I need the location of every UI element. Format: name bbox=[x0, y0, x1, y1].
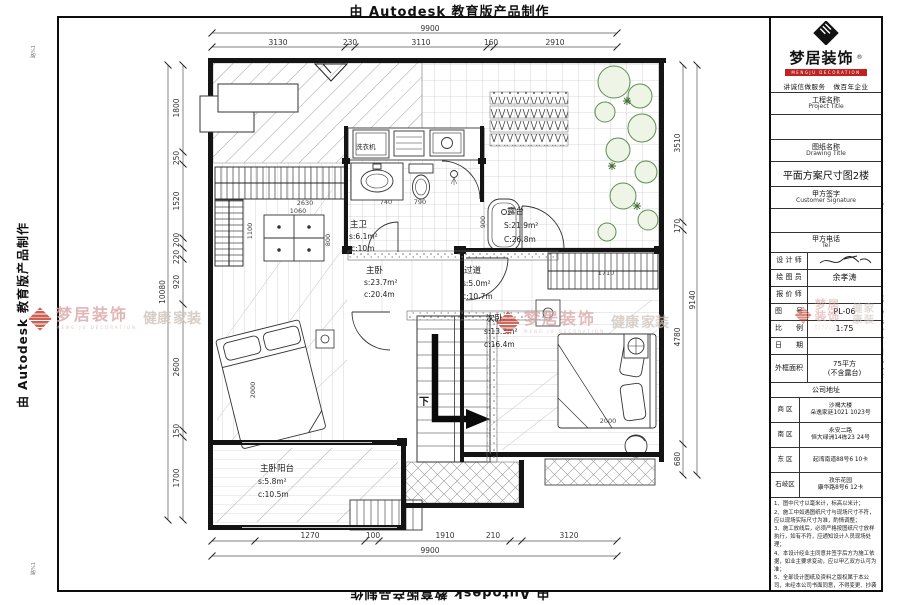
dim-label: 2910 bbox=[545, 38, 564, 47]
baywindow-seat-crosshatch bbox=[545, 459, 655, 485]
quoter-row: 报 价 师 bbox=[771, 287, 881, 304]
brand-subtitle: MENGJU DECORATION bbox=[785, 69, 866, 76]
draftsman-row: 绘 图 员 余孝涛 bbox=[771, 270, 881, 287]
area-row: 外框面积 75平方 (不含露台) bbox=[771, 355, 881, 383]
project-title-value bbox=[771, 115, 881, 140]
note-line: 5、全部设计图纸及资料之版权属于本公司，未经本公司书面同意，不得变更、抄袭及复制… bbox=[774, 575, 878, 590]
address-row: 石岐区 孜乐花园 康华路8号6 12卡 bbox=[771, 473, 881, 498]
room-perimeter: c:10.5m bbox=[258, 490, 289, 499]
room-perimeter: C:26.8m bbox=[504, 235, 536, 244]
dim-label: 2000 bbox=[600, 417, 617, 425]
dim-label: 1270 bbox=[300, 531, 319, 540]
dim-total-right: 9140 bbox=[688, 290, 697, 309]
dim-label: 740 bbox=[380, 198, 392, 206]
grate-icon bbox=[394, 131, 424, 156]
registered-mark: ® bbox=[857, 54, 863, 61]
project-title-header: 工程名称 Project Title bbox=[771, 93, 881, 115]
dim-label: 170 bbox=[673, 219, 682, 234]
dim-total-bottom: 9900 bbox=[420, 546, 439, 555]
dim-label: 1700 bbox=[172, 468, 181, 487]
room-perimeter: c:16.4m bbox=[484, 340, 515, 349]
slogan-left: 讲诚信做服务 bbox=[784, 81, 826, 91]
floor-plan-canvas: 9900 3130 230 3110 160 2910 1270 100 191… bbox=[59, 18, 771, 589]
dim-label: 160 bbox=[484, 38, 499, 47]
room-area: s:5.0m² bbox=[462, 279, 491, 288]
toilet-icon bbox=[409, 164, 433, 173]
room-name-balcony: 主卧阳台 bbox=[260, 463, 294, 474]
dim-label: 220 bbox=[172, 250, 181, 265]
room-area: s:13.3m² bbox=[484, 327, 517, 336]
room-area: S:21.9m² bbox=[504, 221, 538, 230]
dim-label: 790 bbox=[414, 198, 426, 206]
washer-label: 洗衣机 bbox=[356, 142, 376, 151]
dim-total-left: 10080 bbox=[158, 280, 167, 304]
room-perimeter: c:20.4m bbox=[364, 290, 395, 299]
staircase bbox=[417, 316, 490, 462]
general-notes: 1、图中尺寸以毫米计，标高以米计； 2、施工中如遇图纸尺寸与现场尺寸不符，应以现… bbox=[771, 498, 881, 590]
customer-signature-value bbox=[771, 209, 881, 233]
company-address-header: 公司地址 bbox=[771, 383, 881, 398]
dim-label: 920 bbox=[172, 275, 181, 290]
drawing-title-value: 平面方案尺寸图2楼 bbox=[771, 162, 881, 187]
dim-label: 200 bbox=[172, 233, 181, 248]
dim-label: 1710 bbox=[598, 269, 615, 277]
drawing-title-header: 图纸名称 Drawing Title bbox=[771, 140, 881, 162]
dim-label: 800 bbox=[324, 234, 332, 246]
dim-label: 3130 bbox=[268, 38, 287, 47]
room-area: s:5.8m² bbox=[258, 477, 287, 486]
dim-label: 250 bbox=[172, 151, 181, 166]
company-logo-icon bbox=[811, 21, 841, 45]
dim-label: 150 bbox=[172, 424, 181, 439]
dim-label: 4780 bbox=[673, 327, 682, 346]
counter-sink-icon bbox=[430, 130, 464, 156]
dim-label: 1910 bbox=[435, 531, 454, 540]
drawing-number-row: 图 号 PL-06 bbox=[771, 304, 881, 321]
note-line: 1、图中尺寸以毫米计，标高以米计； bbox=[774, 501, 878, 509]
stair-down-label: 下 bbox=[419, 396, 429, 408]
slogan-right: 做百年企业 bbox=[834, 81, 869, 91]
tel-header: 甲方电话 Tel bbox=[771, 233, 881, 253]
dim-label: 900 bbox=[479, 216, 487, 228]
room-area: s:6.1m² bbox=[349, 232, 378, 241]
address-row: 东 区 起湾南道88号6 10卡 bbox=[771, 448, 881, 473]
title-block: 梦居装饰 ® MENGJU DECORATION 讲诚信做服务 做百年企业 工程… bbox=[769, 18, 881, 590]
dim-label: 3110 bbox=[411, 38, 430, 47]
watermark-diamond-icon bbox=[28, 307, 51, 330]
room-name-second: 次卧 bbox=[486, 313, 504, 324]
room-perimeter: c:10m bbox=[351, 244, 375, 253]
plot-corner-mark-bottom: 路%1 bbox=[30, 562, 37, 575]
plot-corner-mark-top: 路%1 bbox=[30, 45, 37, 58]
dim-label: 100 bbox=[366, 531, 381, 540]
room-name-bath: 主卫 bbox=[350, 219, 368, 230]
company-logo-block: 梦居装饰 ® MENGJU DECORATION 讲诚信做服务 做百年企业 bbox=[771, 18, 881, 93]
designer-signature bbox=[816, 254, 874, 268]
master-nightstand-icon bbox=[316, 330, 334, 348]
dim-label: 3120 bbox=[559, 531, 578, 540]
room-name-master: 主卧 bbox=[366, 265, 384, 276]
room-area: s:23.7m² bbox=[364, 278, 397, 287]
canopy-crosshatch bbox=[406, 462, 519, 503]
ceiling-fan-icon bbox=[624, 334, 648, 358]
designer-row: 设 计 师 bbox=[771, 253, 881, 270]
note-line: 3、施工放线后，必须严格按图纸尺寸放样执行，如有不符，应通知设计人员现场处理； bbox=[774, 526, 878, 549]
plotted-cad-sheet: { "banner": { "text": "由 Autodesk 教育版产品制… bbox=[0, 0, 899, 605]
room-name-hall: 过道 bbox=[464, 265, 482, 276]
dim-label: 1800 bbox=[172, 98, 181, 117]
dim-label: 1100 bbox=[246, 223, 254, 240]
address-row: 南 区 永安二路 恒大绿洲14栋23 24号 bbox=[771, 423, 881, 448]
room-name-terrace: 露台 bbox=[507, 206, 524, 217]
dim-label: 210 bbox=[486, 531, 501, 540]
scale-row: 比 例 1:75 bbox=[771, 321, 881, 338]
dim-label: 1060 bbox=[290, 207, 307, 215]
dim-label: 3510 bbox=[673, 133, 682, 152]
dim-label: 1520 bbox=[172, 191, 181, 210]
autodesk-banner-left: 由 Autodesk 教育版产品制作 bbox=[14, 222, 31, 408]
address-row: 商 区 沙褐大楼 朵逸家廷1021 1023号 bbox=[771, 398, 881, 423]
dim-label: 2000 bbox=[249, 382, 257, 399]
dim-total-top: 9900 bbox=[420, 24, 439, 33]
master-door-arc bbox=[352, 312, 390, 350]
note-line: 4、本设计经业主同意并签字后方为施工依据，如业主要求变动，应以甲乙双方认可为准； bbox=[774, 551, 878, 574]
square-table-icon bbox=[264, 215, 324, 261]
note-line: 2、施工中如遇图纸尺寸与现场尺寸不符，应以现场实际尺寸为准，酌情调整； bbox=[774, 510, 878, 526]
customer-signature-header: 甲方签字 Customer Signature bbox=[771, 187, 881, 209]
dim-label: 230 bbox=[343, 38, 358, 47]
room-perimeter: c:10.7m bbox=[462, 292, 493, 301]
drawing-sheet-frame: 9900 3130 230 3110 160 2910 1270 100 191… bbox=[57, 16, 883, 592]
dim-label: 680 bbox=[673, 452, 682, 467]
dim-label: 2630 bbox=[297, 199, 314, 207]
brand-name: 梦居装饰 bbox=[789, 47, 853, 68]
dim-label: 2600 bbox=[172, 357, 181, 376]
date-row: 日 期 bbox=[771, 338, 881, 355]
